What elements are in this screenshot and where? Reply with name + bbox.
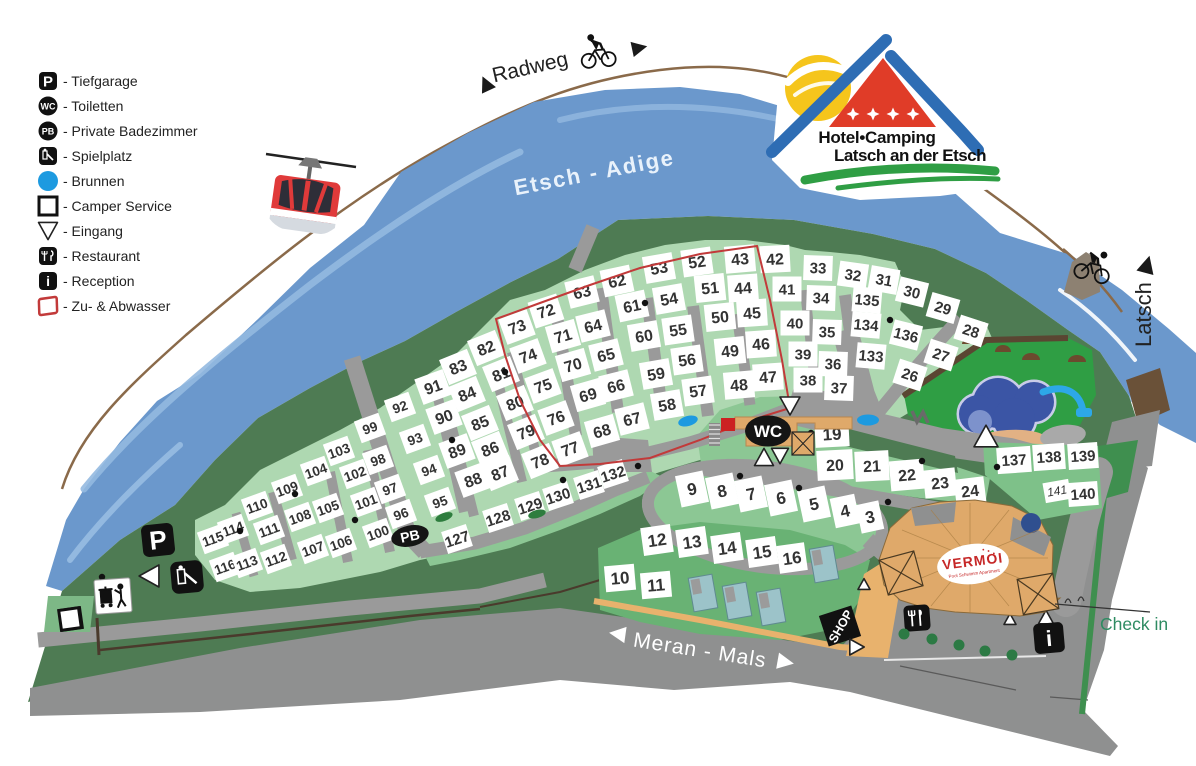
svg-text:P: P — [43, 74, 53, 91]
svg-text:- Eingang: - Eingang — [63, 223, 123, 239]
svg-text:39: 39 — [795, 346, 812, 363]
svg-text:40: 40 — [787, 315, 804, 332]
svg-text:24: 24 — [960, 483, 980, 502]
svg-text:PB: PB — [42, 127, 55, 137]
svg-text:- Brunnen: - Brunnen — [63, 173, 124, 189]
svg-text:- Private Badezimmer: - Private Badezimmer — [63, 123, 198, 139]
svg-text:137: 137 — [1001, 451, 1027, 470]
svg-text:WC: WC — [754, 422, 782, 441]
svg-text:- Camper Service: - Camper Service — [63, 198, 172, 214]
svg-text:56: 56 — [677, 351, 697, 370]
svg-text:23: 23 — [930, 475, 950, 494]
svg-text:49: 49 — [720, 343, 740, 362]
svg-text:- Tiefgarage: - Tiefgarage — [63, 73, 138, 89]
svg-text:13: 13 — [681, 532, 702, 553]
svg-text:Latsch: Latsch — [1131, 282, 1156, 347]
svg-text:48: 48 — [729, 377, 748, 395]
svg-text:37: 37 — [830, 380, 847, 398]
svg-text:WC: WC — [41, 102, 56, 112]
svg-text:Latsch an der Etsch: Latsch an der Etsch — [834, 146, 986, 165]
svg-text:135: 135 — [854, 291, 880, 310]
svg-text:50: 50 — [710, 309, 730, 328]
svg-text:55: 55 — [668, 321, 688, 340]
svg-text:14: 14 — [716, 538, 738, 560]
svg-text:36: 36 — [824, 356, 841, 374]
svg-text:46: 46 — [752, 336, 771, 354]
svg-text:140: 140 — [1070, 485, 1096, 504]
svg-text:43: 43 — [730, 251, 749, 269]
svg-text:45: 45 — [743, 305, 762, 323]
svg-text:42: 42 — [766, 251, 785, 269]
svg-text:Hotel•Camping: Hotel•Camping — [818, 128, 935, 147]
svg-text:10: 10 — [610, 568, 631, 589]
svg-text:i: i — [46, 273, 50, 289]
svg-text:- Restaurant: - Restaurant — [63, 248, 140, 264]
svg-text:- Spielplatz: - Spielplatz — [63, 148, 132, 164]
svg-text:58: 58 — [657, 396, 678, 416]
svg-text:44: 44 — [734, 280, 753, 298]
svg-text:35: 35 — [818, 324, 835, 342]
svg-text:133: 133 — [858, 347, 884, 366]
svg-text:20: 20 — [826, 457, 845, 475]
svg-text:11: 11 — [646, 575, 666, 595]
svg-text:60: 60 — [634, 327, 655, 347]
svg-text:57: 57 — [688, 382, 708, 401]
svg-text:21: 21 — [863, 458, 882, 476]
svg-text:Check in: Check in — [1100, 614, 1168, 634]
svg-text:- Toiletten: - Toiletten — [63, 98, 123, 114]
svg-text:22: 22 — [897, 467, 916, 485]
svg-text:32: 32 — [843, 266, 862, 285]
svg-text:P: P — [148, 524, 168, 556]
svg-text:16: 16 — [781, 548, 802, 569]
svg-text:- Reception: - Reception — [63, 273, 135, 289]
svg-text:61: 61 — [622, 297, 643, 317]
svg-text:139: 139 — [1070, 447, 1096, 466]
svg-text:41: 41 — [779, 281, 796, 298]
svg-text:54: 54 — [659, 290, 680, 310]
svg-text:38: 38 — [800, 372, 817, 389]
svg-text:138: 138 — [1036, 448, 1062, 467]
svg-text:59: 59 — [646, 365, 667, 385]
svg-text:34: 34 — [812, 290, 830, 308]
svg-text:12: 12 — [646, 530, 667, 551]
svg-text:31: 31 — [874, 271, 893, 291]
svg-text:134: 134 — [853, 316, 880, 335]
svg-text:51: 51 — [700, 280, 720, 299]
svg-text:47: 47 — [759, 369, 778, 387]
svg-text:- Zu- & Abwasser: - Zu- & Abwasser — [63, 298, 171, 314]
svg-text:15: 15 — [751, 542, 772, 563]
svg-text:33: 33 — [809, 260, 826, 278]
